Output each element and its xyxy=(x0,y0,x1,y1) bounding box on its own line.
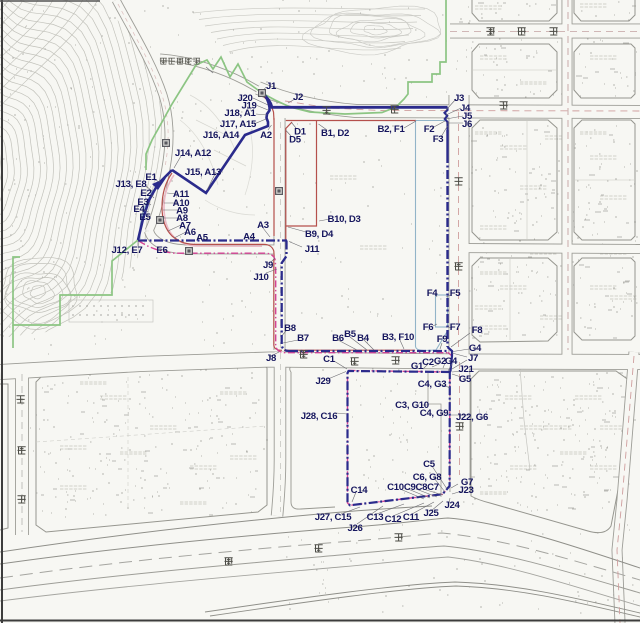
svg-text:B2, F1: B2, F1 xyxy=(378,124,406,135)
svg-text:E6: E6 xyxy=(156,245,167,256)
svg-text:J14, A12: J14, A12 xyxy=(175,148,211,159)
svg-text:J29: J29 xyxy=(315,376,330,387)
svg-text:A2: A2 xyxy=(260,130,272,141)
svg-text:F7: F7 xyxy=(450,322,461,333)
svg-text:C12: C12 xyxy=(385,514,402,525)
svg-text:D5: D5 xyxy=(289,135,302,146)
svg-text:J16, A14: J16, A14 xyxy=(203,130,240,141)
svg-text:C5: C5 xyxy=(423,459,436,470)
svg-text:E5: E5 xyxy=(139,212,151,223)
svg-text:J12, E7: J12, E7 xyxy=(112,245,143,256)
svg-text:G5: G5 xyxy=(459,374,472,385)
svg-text:E1: E1 xyxy=(145,172,157,183)
svg-text:G4: G4 xyxy=(469,343,482,354)
svg-text:B3, F10: B3, F10 xyxy=(382,332,414,343)
svg-text:J7: J7 xyxy=(468,353,478,364)
svg-text:B8: B8 xyxy=(284,323,297,334)
svg-text:C4, G9: C4, G9 xyxy=(420,408,449,419)
svg-text:F8: F8 xyxy=(472,325,484,336)
svg-text:F9: F9 xyxy=(437,334,448,345)
svg-text:F6: F6 xyxy=(423,322,434,333)
svg-text:J9: J9 xyxy=(263,260,273,271)
svg-text:C4, G3: C4, G3 xyxy=(418,379,447,390)
svg-text:C10C9C8C7: C10C9C8C7 xyxy=(387,482,439,493)
svg-text:A6: A6 xyxy=(184,227,196,238)
svg-text:J17, A15: J17, A15 xyxy=(220,119,257,130)
svg-text:B5: B5 xyxy=(344,329,357,340)
svg-text:C11: C11 xyxy=(403,512,420,523)
svg-text:J26: J26 xyxy=(347,523,362,534)
svg-text:B10, D3: B10, D3 xyxy=(327,214,360,225)
svg-text:J15, A13: J15, A13 xyxy=(185,167,221,178)
svg-text:J1: J1 xyxy=(266,81,277,92)
svg-text:B7: B7 xyxy=(297,333,309,344)
svg-text:B1, D2: B1, D2 xyxy=(321,128,349,139)
svg-text:J6: J6 xyxy=(462,119,472,130)
svg-text:J18, A1: J18, A1 xyxy=(224,108,256,119)
svg-text:J2: J2 xyxy=(293,92,303,103)
svg-text:C1: C1 xyxy=(323,354,336,365)
svg-text:G4: G4 xyxy=(445,356,458,367)
svg-text:F4: F4 xyxy=(427,288,439,299)
svg-text:J22, G6: J22, G6 xyxy=(456,412,488,423)
svg-text:C13: C13 xyxy=(367,512,384,523)
svg-text:B4: B4 xyxy=(357,333,370,344)
svg-text:A5: A5 xyxy=(196,233,209,244)
svg-text:J24: J24 xyxy=(444,500,460,511)
svg-text:C2: C2 xyxy=(422,357,434,368)
svg-text:J28, C16: J28, C16 xyxy=(301,411,338,422)
svg-text:F3: F3 xyxy=(433,134,444,145)
svg-text:J23: J23 xyxy=(458,485,473,496)
svg-text:J25: J25 xyxy=(423,508,439,519)
svg-text:C14: C14 xyxy=(351,485,369,496)
svg-text:A3: A3 xyxy=(257,220,269,231)
svg-text:A4: A4 xyxy=(243,232,256,243)
svg-text:B6: B6 xyxy=(332,333,344,344)
svg-text:J8: J8 xyxy=(266,353,277,364)
svg-text:J10: J10 xyxy=(253,272,268,283)
svg-text:J27, C15: J27, C15 xyxy=(315,512,353,523)
svg-text:F5: F5 xyxy=(450,288,462,299)
svg-text:J11: J11 xyxy=(305,244,321,255)
svg-text:B9, D4: B9, D4 xyxy=(305,229,334,240)
